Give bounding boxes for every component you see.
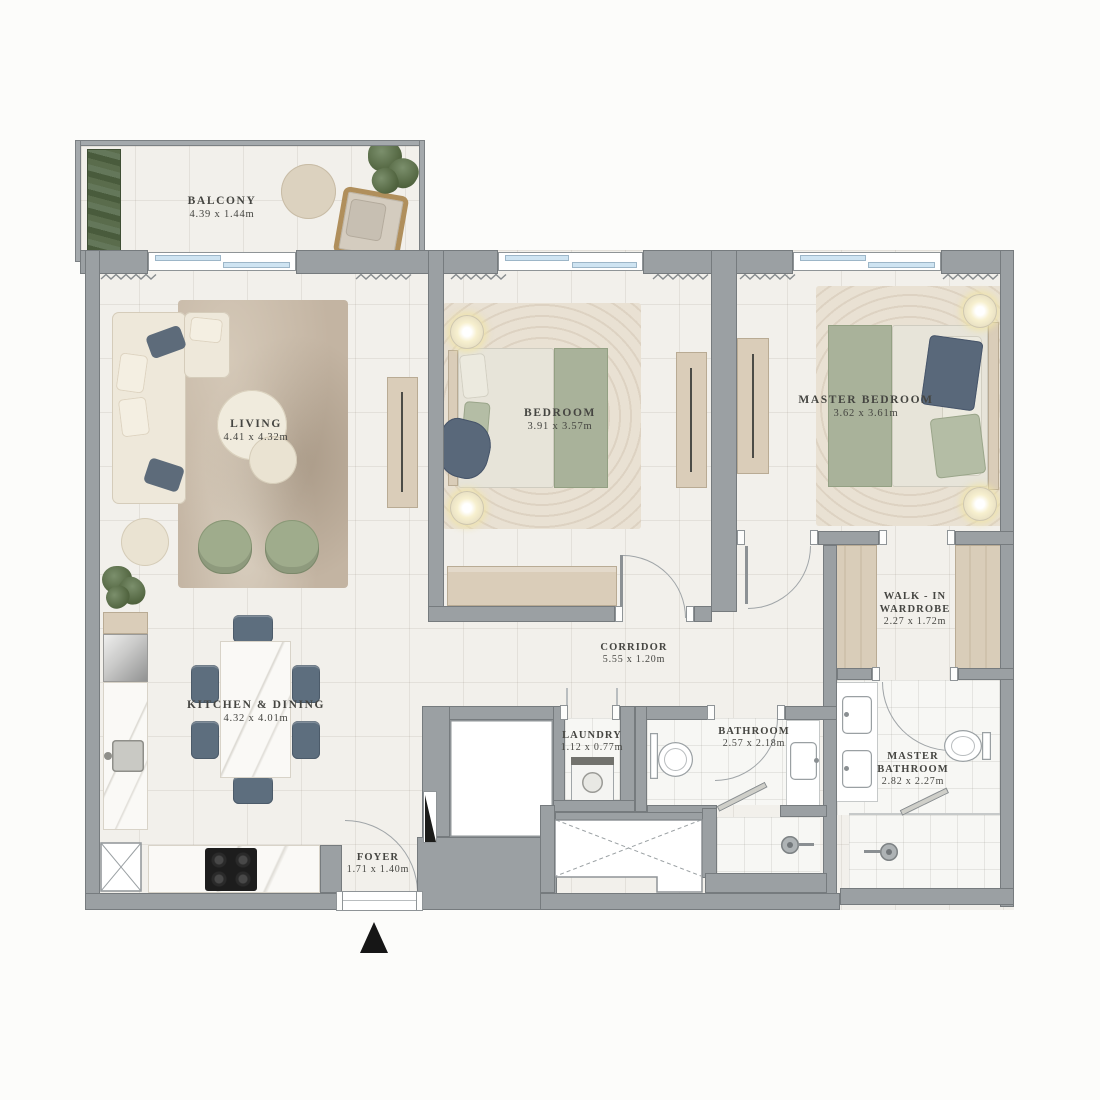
bathroom-shower-floor [717,817,820,875]
bathroom-sink [790,742,817,780]
side-table [121,518,169,566]
dining-chair [292,721,320,759]
master-toilet-tank [982,732,991,760]
wall-laundry-right [620,706,635,812]
wall [540,805,555,893]
label-balcony: BALCONY 4.39 x 1.44m [188,194,257,221]
door-jamb [810,530,818,545]
room-dims: 2.27 x 1.72m [880,616,951,628]
door-jamb [737,530,745,545]
shaft-void-icon [100,842,142,892]
walkin-unit-right [955,545,1002,670]
room-name: CORRIDOR [600,641,667,654]
cooktop [205,848,257,891]
toilet-bowl-inner [951,736,975,756]
wall-bathroom-left [635,706,647,812]
dining-chair [233,776,273,804]
window-glass [572,262,637,268]
room-dims: 2.82 x 2.27m [877,776,949,788]
door-jamb [560,705,568,720]
fridge [103,634,148,682]
bedroom-dresser [447,566,617,606]
wall [955,531,1014,545]
label-kitchen-dining: KITCHEN & DINING 4.32 x 4.01m [187,698,325,725]
wall-bottom-right [840,888,1014,905]
toilet-bowl-inner [664,748,687,771]
master-bedroom-window [793,252,941,271]
vertical-garden [87,149,121,257]
closet-door-swing-icon [425,795,436,842]
label-foyer: FOYER 1.71 x 1.40m [347,851,409,876]
wall-living-bedroom [428,250,444,614]
door-jamb [872,667,880,681]
wall [694,606,712,622]
washing-machine-drum-icon [582,772,603,793]
room-dims: 1.12 x 0.77m [561,742,623,754]
room-name: LIVING [223,417,288,431]
balcony-chair-cushion [345,198,387,242]
wall-bottom-kitchen [85,893,342,910]
dining-chair [233,615,273,643]
balcony-wall-left [75,140,81,262]
room-dims: 3.62 x 3.61m [798,407,933,420]
door-jamb [416,891,423,911]
shaft-void-icon [555,818,703,894]
wardrobe-handle [752,354,754,458]
room-name: WALK - IN [880,590,951,603]
window-glass [800,255,865,261]
armchair [198,520,252,574]
wall-right-outer [1000,250,1014,907]
room-dims: 5.55 x 1.20m [600,654,667,666]
faucet-icon [104,752,112,760]
door-jamb [777,705,785,720]
faucet-icon [814,758,819,763]
nightstand-lamp-icon [450,315,484,349]
nightstand-lamp-icon [963,294,997,328]
door-jamb [947,530,955,545]
room-name: WARDROBE [880,603,951,616]
door-jamb [612,705,620,720]
wall-kitchen-stub [320,845,342,893]
wall [958,668,1014,680]
kitchen-tall-cabinet [103,612,148,634]
shower-glass [849,813,1000,815]
sofa-cushion [118,396,150,437]
wall [417,837,557,910]
room-name: BATHROOM [718,725,790,738]
master-bed-headboard [988,322,999,490]
wall [785,706,837,720]
wall-bedroom-master [711,250,737,612]
door-jamb [707,705,715,720]
room-dims: 4.39 x 1.44m [188,208,257,221]
balcony-wall-right [419,140,425,262]
label-laundry: LAUNDRY 1.12 x 0.77m [561,729,623,754]
faucet-icon [844,712,849,717]
room-name: FOYER [347,851,409,864]
bedroom-window [498,252,643,271]
laundry-door-post [566,688,568,706]
shower-arm [864,850,880,853]
label-bathroom: BATHROOM 2.57 x 2.18m [718,725,790,750]
door-jamb [336,891,343,911]
label-bedroom: BEDROOM 3.91 x 3.57m [524,406,596,433]
window-glass [223,262,290,268]
label-walk-in-wardrobe: WALK - IN WARDROBE 2.27 x 1.72m [880,590,951,628]
console-handle [401,392,403,492]
label-living: LIVING 4.41 x 4.32m [223,417,288,444]
door-leaf-master-bedroom [745,546,748,604]
nightstand-lamp-icon [963,487,997,521]
walkin-unit-left [830,545,877,670]
living-window [148,252,296,271]
window-glass [505,255,569,261]
room-name: MASTER BEDROOM [798,393,933,407]
sofa-cushion [115,352,148,394]
wall-corridor-walkin [823,545,837,905]
label-corridor: CORRIDOR 5.55 x 1.20m [600,641,667,666]
room-dims: 4.32 x 4.01m [187,712,325,725]
wall [428,606,615,622]
label-master-bathroom: MASTER BATHROOM 2.82 x 2.27m [877,750,949,788]
wall-bottom-mid [540,893,840,910]
room-dims: 4.41 x 4.32m [223,431,288,444]
door-jamb [879,530,887,545]
toilet-tank [650,733,658,779]
bed-pillow [459,353,489,399]
window-glass [155,255,220,261]
balcony-table [281,164,336,219]
room-name: KITCHEN & DINING [187,698,325,712]
shower-head-icon [781,836,799,854]
wall [780,805,827,817]
floor-plan: BALCONY 4.39 x 1.44m LIVING 4.41 x 4.32m… [0,0,1100,1100]
room-name: BEDROOM [524,406,596,420]
room-name: BALCONY [188,194,257,208]
wall [296,250,498,274]
wall-laundry-bottom [553,800,635,812]
wardrobe-handle [690,368,692,472]
door-jamb [950,667,958,681]
nightstand-lamp-icon [450,491,484,525]
room-dims: 1.71 x 1.40m [347,864,409,876]
entrance-marker-icon [360,922,388,953]
wall [837,668,872,680]
closet-box [450,720,553,837]
dining-chair [191,721,219,759]
room-name: MASTER [877,750,949,763]
room-name: BATHROOM [877,763,949,776]
window-glass [868,262,935,268]
wall-laundry-left [553,706,565,812]
wall-shower-bottom [705,873,827,893]
room-dims: 3.91 x 3.57m [524,420,596,433]
door-jamb [615,606,623,622]
washing-machine-panel [571,757,614,765]
faucet-icon [844,766,849,771]
balcony-wall-top [75,140,425,146]
bed-pillow [930,413,987,479]
kitchen-sink [112,740,144,772]
shower-head-icon [880,843,898,861]
sofa-cushion [189,316,223,343]
entry-door-threshold [342,891,417,911]
wall [818,531,879,545]
laundry-door-post [616,688,618,706]
door-jamb [686,606,694,622]
label-master-bedroom: MASTER BEDROOM 3.62 x 3.61m [798,393,933,420]
armchair [265,520,319,574]
room-dims: 2.57 x 2.18m [718,738,790,750]
wall-shower-left [702,808,717,878]
room-name: LAUNDRY [561,729,623,742]
wall-left-outer [85,250,100,910]
shower-arm [798,843,814,846]
